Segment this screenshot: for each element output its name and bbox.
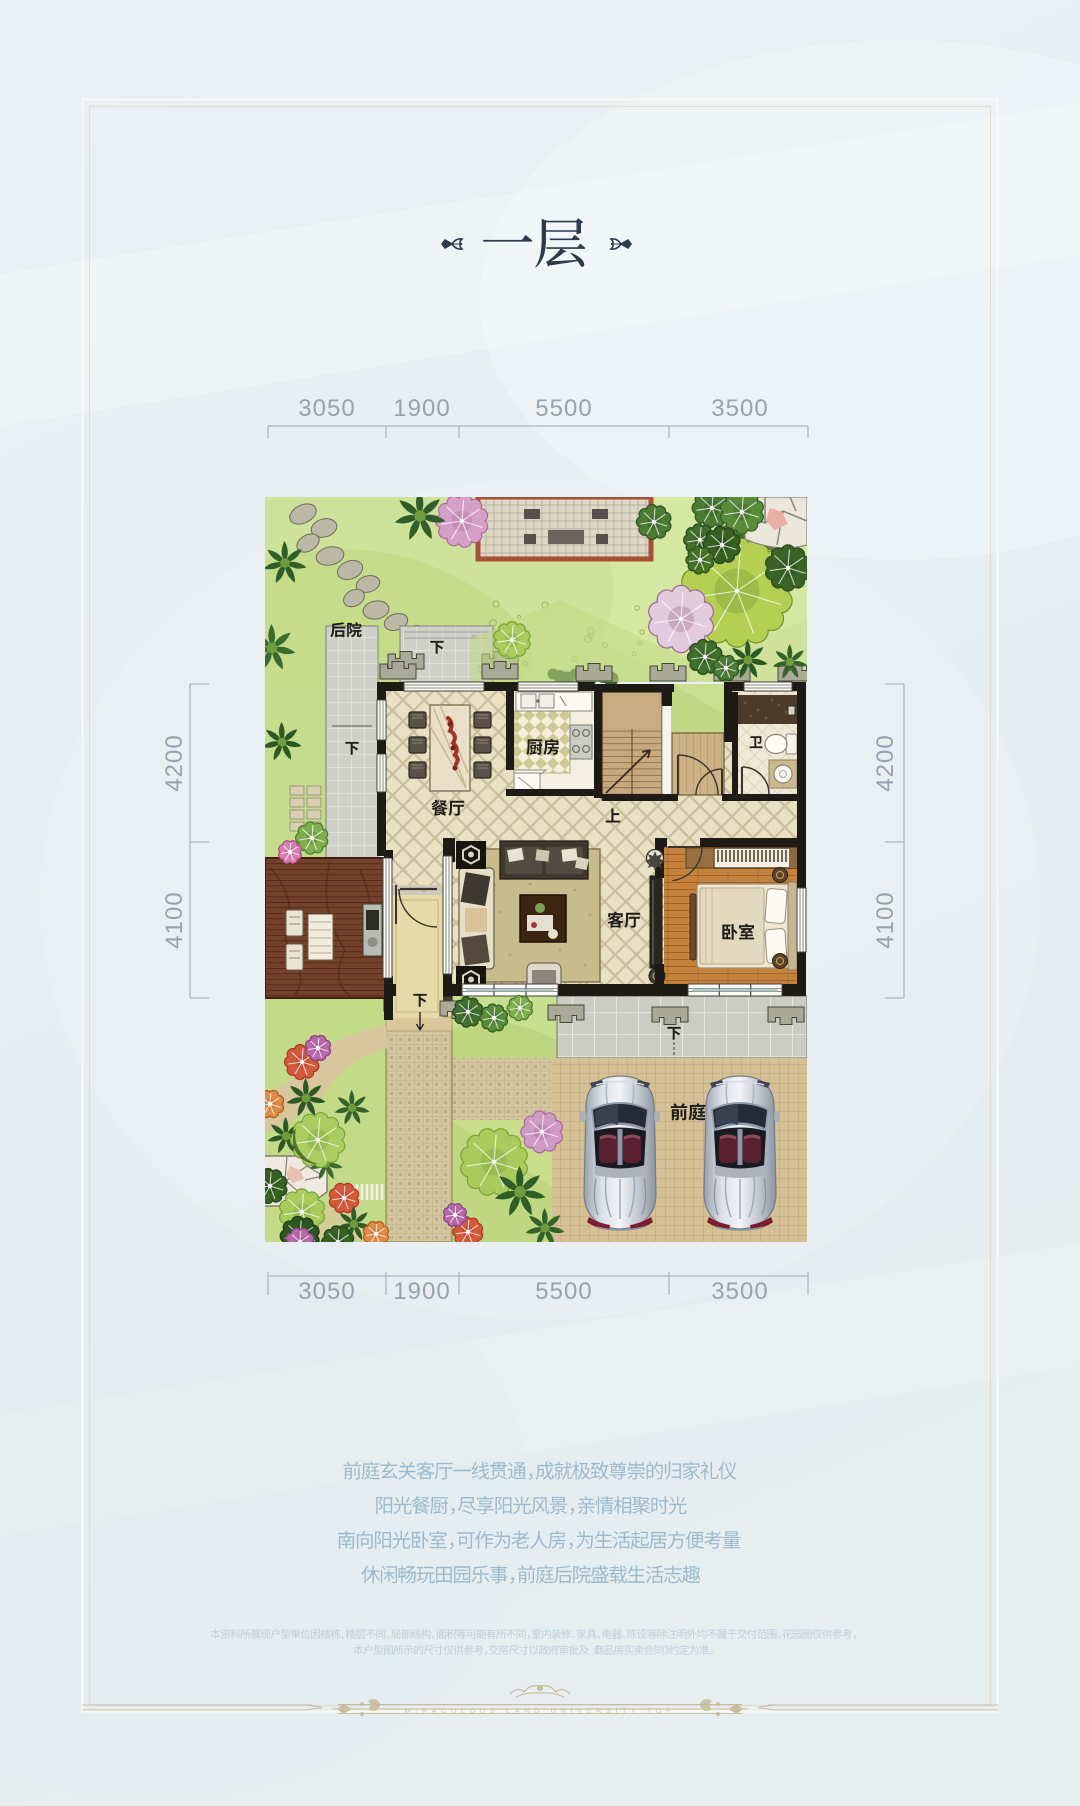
svg-text:4200: 4200 (872, 734, 899, 791)
svg-text:3050: 3050 (298, 1278, 355, 1305)
svg-text:MIRACULOUS LAND UNIVERSITY TOP: MIRACULOUS LAND UNIVERSITY TOP (404, 1706, 675, 1715)
svg-text:5500: 5500 (535, 395, 592, 422)
svg-text:5500: 5500 (535, 1278, 592, 1305)
svg-text:3500: 3500 (711, 1278, 768, 1305)
svg-text:3050: 3050 (298, 395, 355, 422)
svg-text:3500: 3500 (711, 395, 768, 422)
svg-text:4100: 4100 (161, 891, 188, 948)
svg-text:1900: 1900 (393, 1278, 450, 1305)
svg-text:4100: 4100 (872, 891, 899, 948)
svg-text:4200: 4200 (161, 734, 188, 791)
svg-text:1900: 1900 (393, 395, 450, 422)
